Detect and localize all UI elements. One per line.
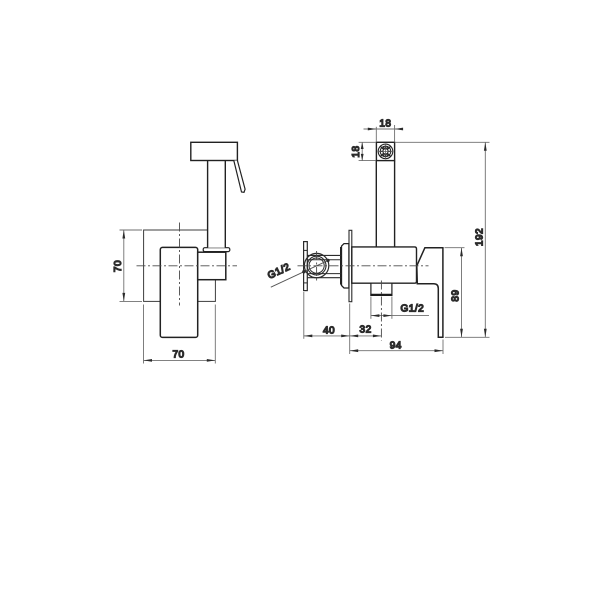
svg-text:70: 70 [113,260,124,272]
svg-text:18: 18 [351,145,362,157]
svg-text:94: 94 [390,341,402,352]
svg-text:G1/2: G1/2 [401,304,425,315]
svg-text:32: 32 [360,325,372,336]
svg-text:70: 70 [172,350,184,361]
svg-text:89: 89 [451,289,462,301]
svg-text:18: 18 [379,119,391,130]
svg-text:40: 40 [323,326,335,337]
svg-text:192: 192 [475,228,486,246]
